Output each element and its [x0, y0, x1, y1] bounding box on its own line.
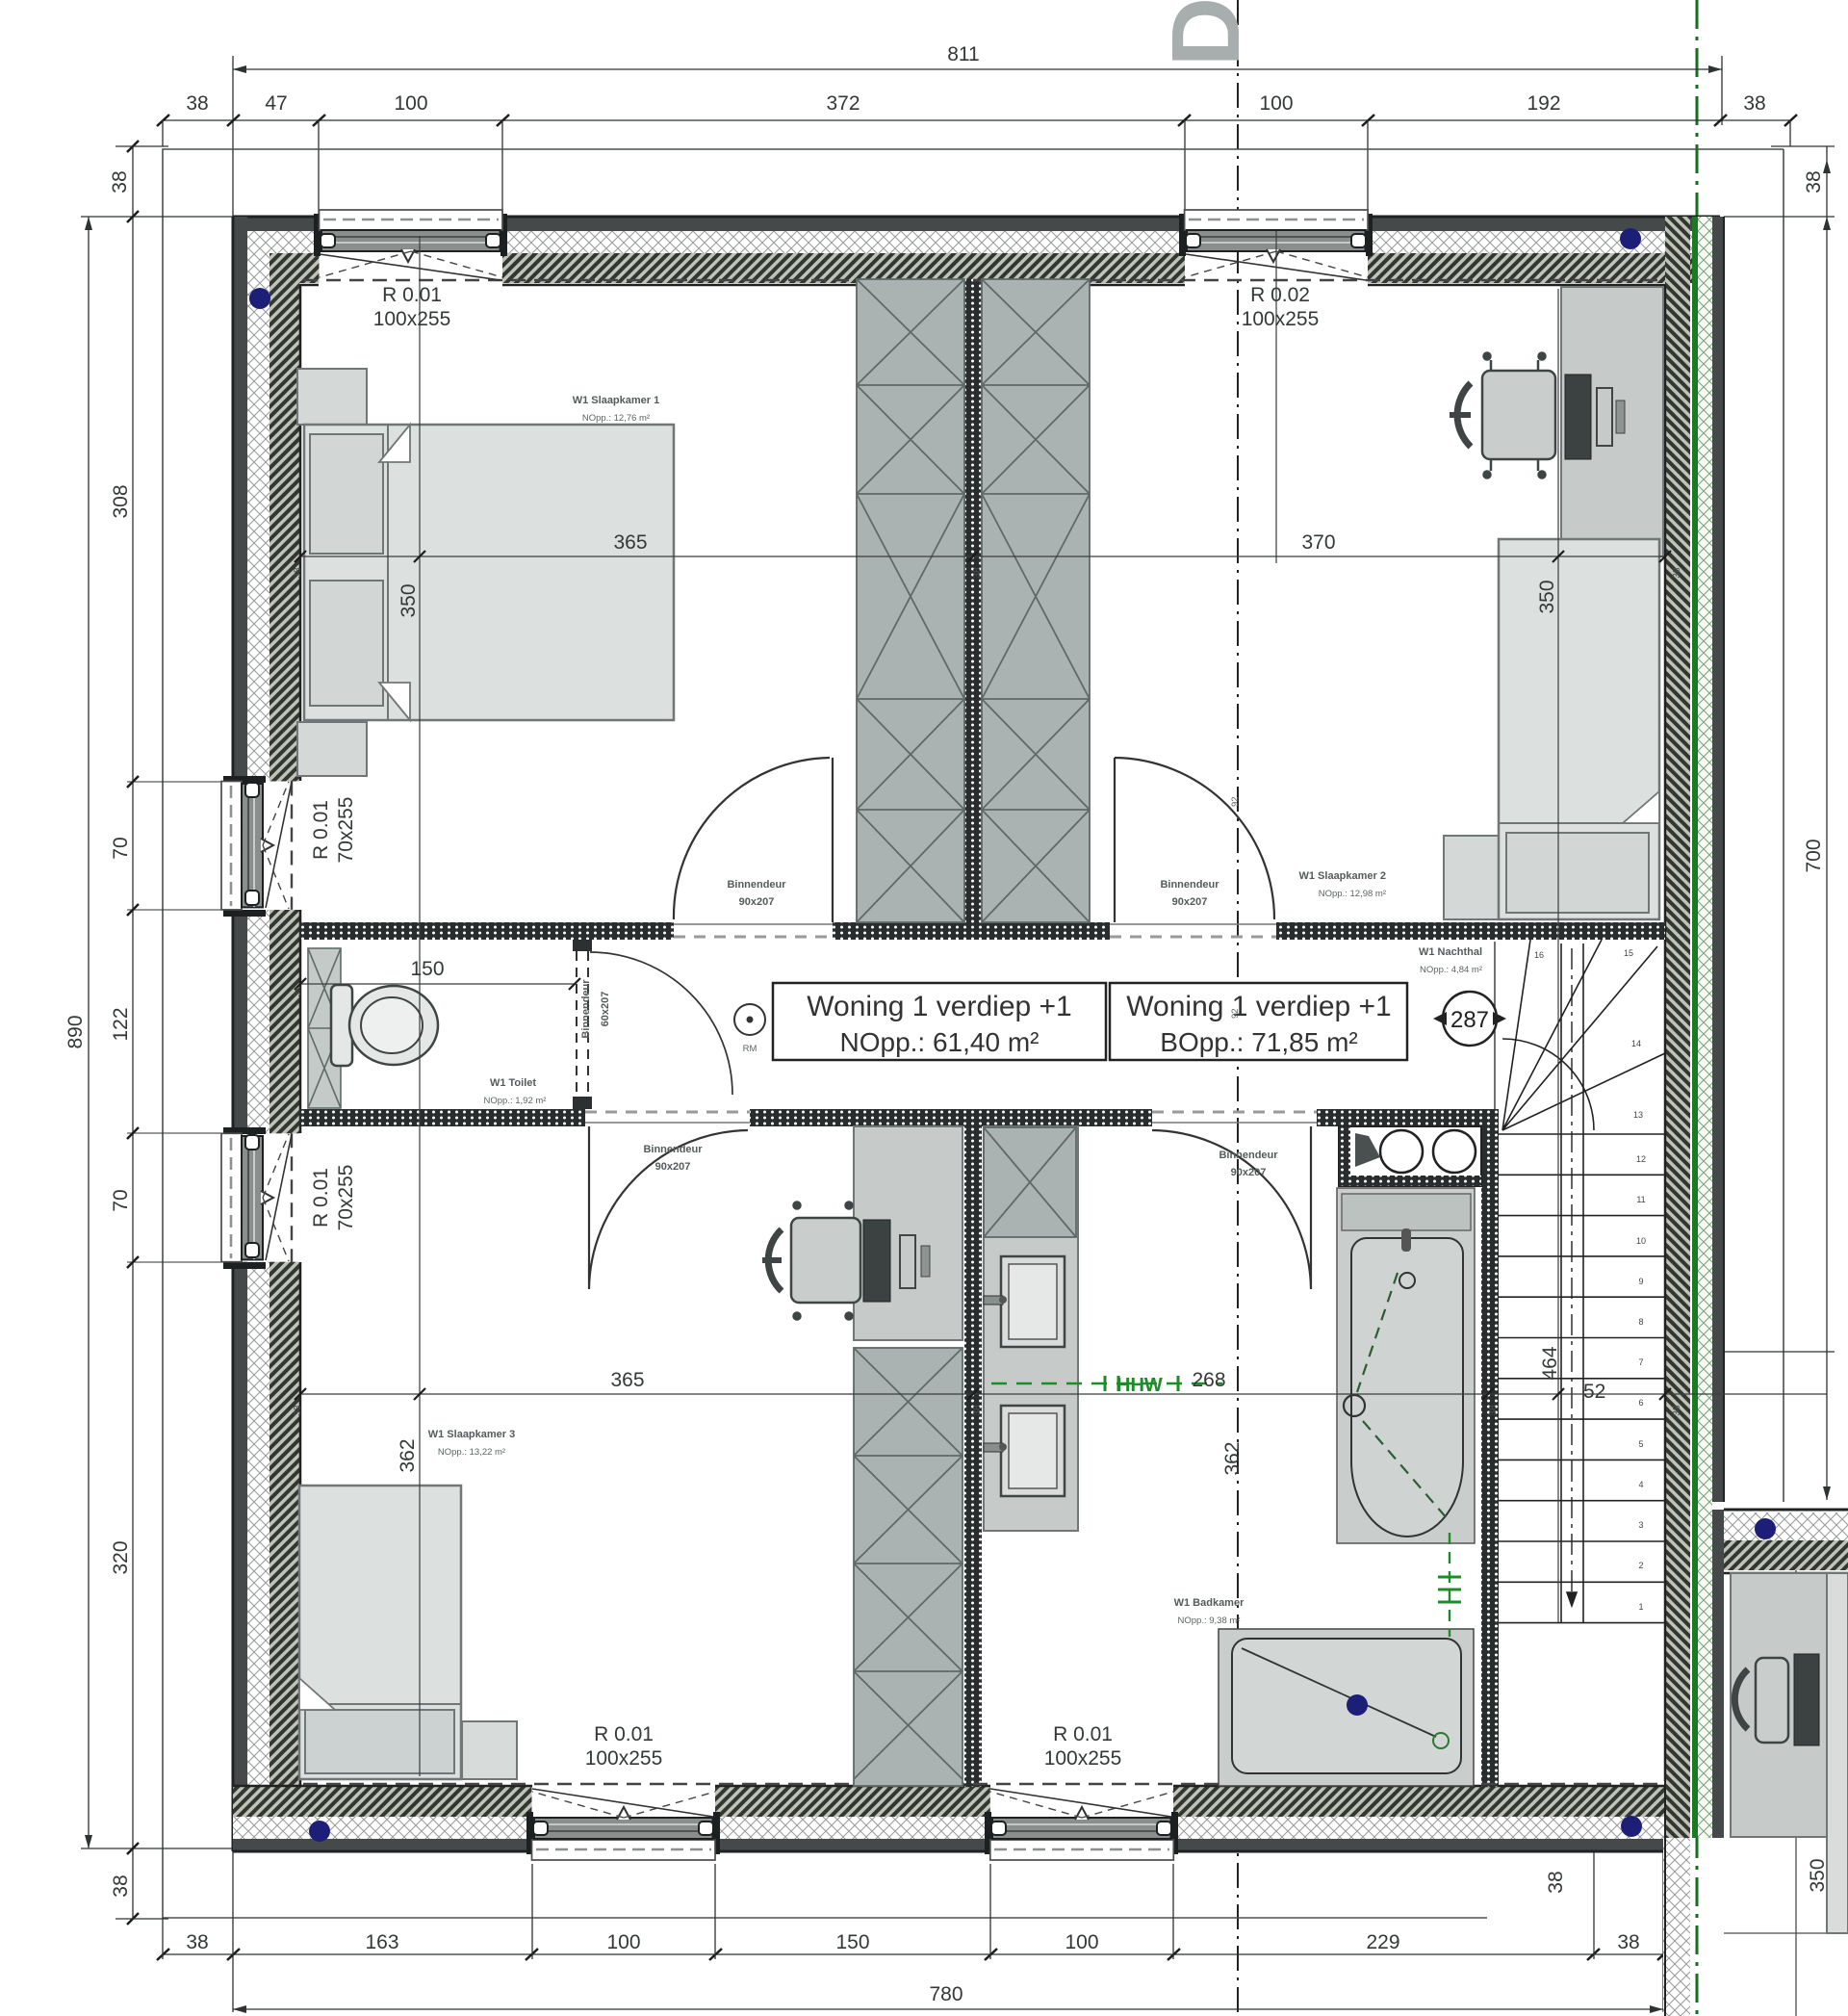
- svg-text:100: 100: [394, 92, 427, 115]
- svg-text:92: 92: [1230, 796, 1241, 807]
- svg-text:163: 163: [365, 1931, 398, 1953]
- svg-text:W1 Nachthal: W1 Nachthal: [1419, 946, 1482, 958]
- svg-text:38: 38: [1743, 92, 1765, 115]
- svg-text:38: 38: [1545, 1871, 1567, 1893]
- svg-text:Binnendeur: Binnendeur: [727, 879, 786, 891]
- svg-text:Binnendeur: Binnendeur: [643, 1144, 703, 1155]
- svg-text:38: 38: [972, 1405, 983, 1416]
- svg-text:R 0.01: R 0.01: [310, 1168, 332, 1228]
- svg-text:365: 365: [613, 531, 647, 554]
- svg-text:38: 38: [972, 567, 983, 579]
- svg-text:100: 100: [606, 1931, 640, 1953]
- svg-text:W1 Slaapkamer 3: W1 Slaapkamer 3: [428, 1429, 516, 1440]
- svg-text:10: 10: [1636, 1236, 1646, 1246]
- svg-text:308: 308: [110, 484, 132, 518]
- svg-text:8: 8: [1638, 1317, 1643, 1327]
- svg-text:100x255: 100x255: [585, 1747, 663, 1770]
- svg-text:16: 16: [1534, 950, 1544, 960]
- svg-text:3x: 3x: [293, 987, 303, 997]
- svg-text:350: 350: [1807, 1858, 1829, 1892]
- svg-text:R 0.01: R 0.01: [310, 800, 332, 860]
- svg-text:38: 38: [1672, 567, 1682, 579]
- svg-text:362: 362: [397, 1438, 419, 1472]
- svg-text:268: 268: [1192, 1369, 1225, 1391]
- svg-text:60x207: 60x207: [600, 992, 611, 1027]
- svg-text:NOpp.: 12,98 m²: NOpp.: 12,98 m²: [1319, 889, 1386, 899]
- svg-text:4: 4: [1638, 1480, 1643, 1489]
- svg-text:350: 350: [398, 583, 420, 617]
- svg-text:15: 15: [1624, 948, 1633, 958]
- svg-text:3: 3: [1638, 1520, 1643, 1530]
- svg-text:NOpp.: 9,38 m²: NOpp.: 9,38 m²: [1178, 1615, 1241, 1626]
- svg-text:9: 9: [1638, 1277, 1643, 1286]
- svg-text:38: 38: [1672, 1405, 1682, 1416]
- svg-text:38: 38: [186, 1931, 208, 1953]
- svg-text:NOpp.: 4,84 m²: NOpp.: 4,84 m²: [1420, 965, 1482, 975]
- svg-text:90x207: 90x207: [1231, 1167, 1267, 1178]
- svg-text:D: D: [1152, 0, 1260, 66]
- svg-text:12: 12: [1636, 1154, 1646, 1164]
- svg-text:464: 464: [1539, 1346, 1561, 1380]
- svg-text:362: 362: [1221, 1441, 1244, 1475]
- svg-text:150: 150: [410, 958, 444, 980]
- svg-text:38: 38: [1803, 170, 1825, 193]
- svg-text:Binnendeur: Binnendeur: [1160, 879, 1219, 891]
- svg-text:R 0.01: R 0.01: [382, 284, 442, 306]
- svg-text:38: 38: [1617, 1931, 1639, 1953]
- svg-text:Woning 1 verdiep +1: Woning 1 verdiep +1: [807, 991, 1071, 1022]
- svg-text:890: 890: [64, 1015, 87, 1048]
- svg-text:90x207: 90x207: [739, 896, 775, 908]
- svg-text:NOpp.: 61,40 m²: NOpp.: 61,40 m²: [840, 1027, 1039, 1057]
- svg-text:47: 47: [265, 92, 287, 115]
- svg-text:780: 780: [929, 1983, 962, 2005]
- svg-text:38: 38: [186, 92, 208, 115]
- svg-text:2: 2: [1638, 1561, 1643, 1570]
- svg-text:NOpp.: 12,76 m²: NOpp.: 12,76 m²: [582, 413, 650, 424]
- svg-text:811: 811: [947, 43, 979, 65]
- svg-text:W1 Toilet: W1 Toilet: [490, 1077, 536, 1089]
- svg-text:372: 372: [826, 92, 860, 115]
- svg-text:14: 14: [1631, 1039, 1641, 1048]
- svg-text:1: 1: [1638, 1602, 1643, 1612]
- svg-text:192: 192: [1527, 92, 1560, 115]
- svg-text:W1 Badkamer: W1 Badkamer: [1174, 1597, 1245, 1609]
- svg-text:W1 Slaapkamer 2: W1 Slaapkamer 2: [1299, 870, 1387, 882]
- svg-text:70x255: 70x255: [335, 1165, 357, 1231]
- svg-text:38: 38: [109, 170, 131, 193]
- svg-text:Woning 1 verdiep +1: Woning 1 verdiep +1: [1126, 991, 1391, 1022]
- svg-text:700: 700: [1803, 839, 1825, 872]
- svg-text:100x255: 100x255: [1242, 308, 1320, 330]
- svg-text:NOpp.: 1,92 m²: NOpp.: 1,92 m²: [484, 1096, 547, 1106]
- svg-text:90x207: 90x207: [1172, 896, 1208, 908]
- svg-text:R 0.01: R 0.01: [1053, 1723, 1113, 1745]
- svg-text:52: 52: [1583, 1381, 1605, 1403]
- svg-text:7: 7: [1638, 1357, 1643, 1367]
- svg-text:90x207: 90x207: [655, 1161, 691, 1173]
- svg-text:38: 38: [110, 1874, 132, 1897]
- svg-text:287: 287: [1450, 1007, 1489, 1033]
- svg-text:122: 122: [110, 1007, 132, 1041]
- svg-text:W1 Slaapkamer 1: W1 Slaapkamer 1: [573, 395, 660, 406]
- svg-text:350: 350: [1536, 580, 1558, 613]
- svg-text:R 0.02: R 0.02: [1250, 284, 1310, 306]
- svg-text:70x255: 70x255: [335, 797, 357, 864]
- svg-text:229: 229: [1366, 1931, 1399, 1953]
- svg-text:320: 320: [110, 1540, 132, 1574]
- svg-text:Binnendeur: Binnendeur: [1219, 1150, 1278, 1161]
- svg-text:Binnendeur: Binnendeur: [580, 979, 592, 1039]
- svg-text:100x255: 100x255: [373, 308, 451, 330]
- svg-text:70: 70: [110, 837, 132, 859]
- svg-text:HHW: HHW: [1116, 1375, 1163, 1396]
- svg-text:5: 5: [1638, 1439, 1643, 1449]
- svg-text:NOpp.: 13,22 m²: NOpp.: 13,22 m²: [438, 1447, 505, 1458]
- svg-text:11: 11: [1636, 1195, 1645, 1204]
- svg-text:370: 370: [1301, 531, 1335, 554]
- svg-text:100: 100: [1065, 1931, 1098, 1953]
- svg-text:13: 13: [1633, 1110, 1643, 1120]
- svg-text:38: 38: [1488, 1405, 1499, 1416]
- svg-text:365: 365: [610, 1369, 644, 1391]
- svg-text:100x255: 100x255: [1044, 1747, 1122, 1770]
- svg-text:6: 6: [1638, 1398, 1643, 1408]
- svg-text:38: 38: [293, 567, 303, 579]
- svg-text:70: 70: [110, 1189, 132, 1211]
- svg-text:100: 100: [1259, 92, 1293, 115]
- svg-text:38: 38: [293, 1405, 303, 1416]
- svg-text:BOpp.: 71,85 m²: BOpp.: 71,85 m²: [1160, 1027, 1357, 1057]
- svg-text:92: 92: [1230, 1008, 1241, 1019]
- svg-text:RM: RM: [743, 1044, 757, 1054]
- svg-text:150: 150: [835, 1931, 869, 1953]
- svg-text:R 0.01: R 0.01: [594, 1723, 654, 1745]
